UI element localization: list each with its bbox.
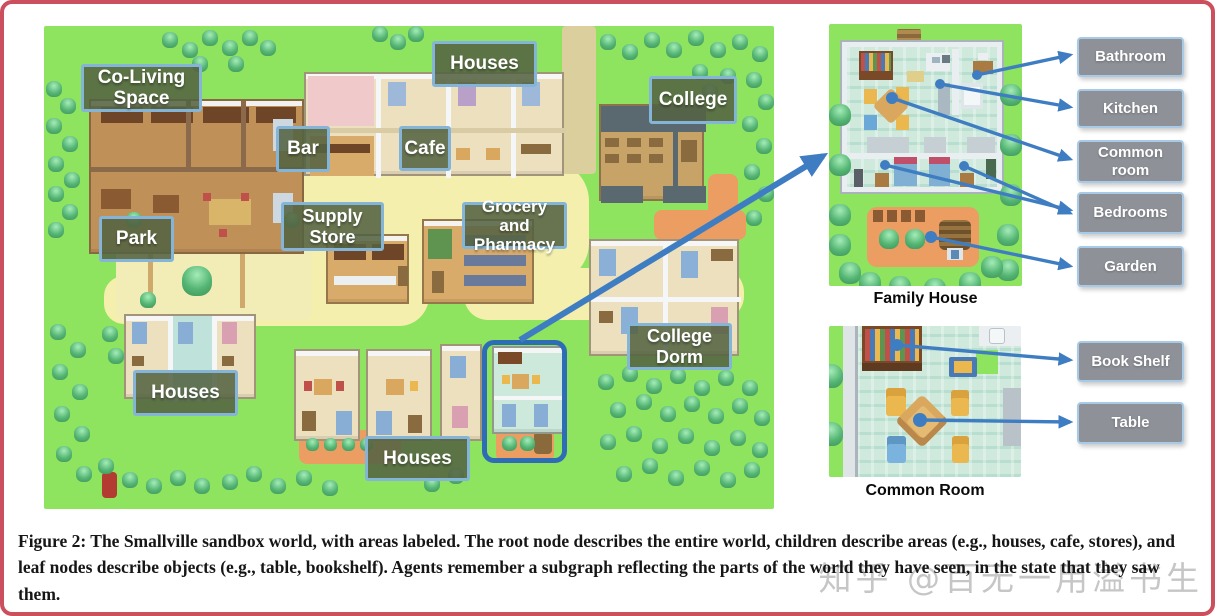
furniture <box>219 229 227 237</box>
tree-icon <box>694 380 710 396</box>
books <box>861 53 891 71</box>
person-icon <box>986 159 996 179</box>
tree-icon <box>670 368 686 384</box>
tree-icon <box>622 44 638 60</box>
building-house-b <box>366 349 432 441</box>
tree-icon <box>50 324 66 340</box>
tree-icon <box>62 136 78 152</box>
furniture <box>132 322 147 344</box>
tree-icon <box>752 442 768 458</box>
tree-icon <box>829 154 851 176</box>
tree-icon <box>1000 184 1022 206</box>
tree-icon <box>742 116 758 132</box>
tree-icon <box>322 480 338 496</box>
garden-tree-icon <box>879 229 899 249</box>
planter-icon <box>901 210 911 222</box>
furniture <box>209 199 251 225</box>
tree-icon <box>260 40 276 56</box>
tree-icon <box>642 458 658 474</box>
furniture <box>649 154 663 163</box>
tree-icon <box>666 42 682 58</box>
tree-icon <box>48 186 64 202</box>
pillow <box>929 157 950 164</box>
building-house-a <box>294 349 360 441</box>
side-chair-icon <box>960 173 974 187</box>
picture <box>954 361 972 373</box>
area-label-co-living-space: Co-Living Space <box>81 64 202 112</box>
tree-icon <box>46 81 62 97</box>
tree-icon <box>72 384 88 400</box>
tree-icon <box>108 348 124 364</box>
furniture <box>408 415 422 433</box>
furniture <box>452 406 468 428</box>
tree-icon <box>889 276 911 286</box>
tree-icon <box>62 204 78 220</box>
garden-tree-icon <box>324 438 337 451</box>
tree-icon <box>732 34 748 50</box>
figure-2-page: Co-Living Space Houses College Bar Cafe … <box>0 0 1215 616</box>
tree-icon <box>720 472 736 488</box>
furniture <box>91 167 306 172</box>
tree-icon <box>730 430 746 446</box>
planter-icon <box>915 210 925 222</box>
wall <box>847 153 997 159</box>
furniture <box>605 154 619 163</box>
tree-icon <box>202 30 218 46</box>
tree-icon <box>64 172 80 188</box>
tree-icon <box>372 26 388 42</box>
tree-icon <box>754 410 770 426</box>
furniture <box>601 186 643 203</box>
tree-icon <box>390 34 406 50</box>
tree-icon <box>718 370 734 386</box>
counter-icon <box>1003 388 1021 446</box>
garden-tree-icon <box>905 229 925 249</box>
wall-edge <box>855 326 858 477</box>
furniture <box>222 322 237 344</box>
furniture <box>376 411 392 435</box>
bathtub-inner <box>964 87 980 105</box>
furniture <box>178 322 193 344</box>
tree-icon <box>146 478 162 494</box>
tree-icon <box>688 30 704 46</box>
tree-icon <box>652 438 668 454</box>
label-bathroom: Bathroom <box>1077 37 1184 77</box>
furniture <box>336 381 344 391</box>
tree-icon <box>54 406 70 422</box>
figure-caption-text: The Smallville sandbox world, with areas… <box>18 531 1175 604</box>
furniture <box>376 74 381 178</box>
tree-icon <box>758 94 774 110</box>
furniture <box>222 356 234 366</box>
furniture <box>398 266 408 286</box>
furniture <box>511 74 516 178</box>
smallville-map: Co-Living Space Houses College Bar Cafe … <box>44 26 774 509</box>
chair-icon <box>887 436 906 463</box>
tree-icon <box>610 402 626 418</box>
furniture <box>681 140 697 162</box>
planter-icon <box>887 210 897 222</box>
tree-icon <box>626 426 642 442</box>
person-icon <box>854 169 863 187</box>
books <box>865 329 919 361</box>
park-big-tree-icon <box>182 266 212 296</box>
family-house-caption: Family House <box>829 290 1022 308</box>
family-house-floor <box>842 42 1002 192</box>
tree-icon <box>170 470 186 486</box>
common-room-caption: Common Room <box>829 482 1021 500</box>
furniture <box>308 76 374 126</box>
tree-icon <box>744 462 760 478</box>
washer-icon <box>989 328 1005 344</box>
tree-icon <box>76 466 92 482</box>
dirt-patch <box>654 210 746 240</box>
tree-icon <box>959 272 981 286</box>
furniture <box>450 356 466 378</box>
figure-caption: Figure 2: The Smallville sandbox world, … <box>18 528 1198 607</box>
tree-icon <box>408 26 424 42</box>
furniture <box>627 138 641 147</box>
tree-icon <box>660 406 676 422</box>
tree-icon <box>829 104 851 126</box>
label-table: Table <box>1077 402 1184 444</box>
tree-icon <box>746 72 762 88</box>
furniture <box>521 144 551 154</box>
area-label-college-dorm: College Dorm <box>627 323 732 370</box>
furniture <box>302 411 316 431</box>
tree-icon <box>98 458 114 474</box>
furniture <box>599 249 616 276</box>
label-garden: Garden <box>1077 246 1184 287</box>
label-book-shelf: Book Shelf <box>1077 341 1184 382</box>
furniture <box>314 379 332 395</box>
garden-patch <box>867 207 979 267</box>
furniture <box>304 381 312 391</box>
area-label-houses-left: Houses <box>133 370 238 416</box>
grass-patch <box>976 350 998 374</box>
tree-icon <box>52 364 68 380</box>
bookshelf-icon <box>862 326 922 371</box>
area-label-grocery-pharmacy: Grocery and Pharmacy <box>462 202 567 249</box>
label-kitchen: Kitchen <box>1077 89 1184 128</box>
furniture <box>464 255 526 266</box>
furniture <box>101 189 131 209</box>
tree-icon <box>704 440 720 456</box>
fridge-icon <box>938 83 950 115</box>
tree-icon <box>1000 134 1022 156</box>
grass-strip <box>829 326 843 477</box>
tree-icon <box>140 292 156 308</box>
planter-icon <box>873 210 883 222</box>
tree-icon <box>646 378 662 394</box>
tree-icon <box>70 342 86 358</box>
red-car-icon <box>102 472 117 498</box>
tree-icon <box>694 460 710 476</box>
area-label-houses-top: Houses <box>432 41 537 87</box>
furniture <box>464 275 526 286</box>
tree-icon <box>228 56 244 72</box>
tree-icon <box>644 32 660 48</box>
label-bedrooms: Bedrooms <box>1077 192 1184 234</box>
tree-icon <box>839 262 861 284</box>
tree-icon <box>732 398 748 414</box>
furniture <box>432 271 444 293</box>
tree-icon <box>708 408 724 424</box>
tree-icon <box>678 428 694 444</box>
tree-icon <box>48 156 64 172</box>
vanity-icon <box>973 61 993 74</box>
family-house-highlight-box <box>482 340 567 463</box>
tree-icon <box>222 40 238 56</box>
wall <box>952 49 959 115</box>
tree-icon <box>46 118 62 134</box>
tree-icon <box>758 186 774 202</box>
tree-icon <box>194 478 210 494</box>
tree-icon <box>598 374 614 390</box>
furniture <box>428 229 452 259</box>
furniture <box>410 381 418 391</box>
sink <box>932 57 940 63</box>
furniture <box>132 356 144 366</box>
tree-icon <box>162 32 178 48</box>
chair-icon <box>952 436 969 463</box>
tree-icon <box>616 466 632 482</box>
tree-icon <box>710 42 726 58</box>
furniture <box>605 138 619 147</box>
side-chair-icon <box>875 173 889 187</box>
tree-icon <box>924 278 946 286</box>
furniture <box>386 379 404 395</box>
tree-icon <box>752 46 768 62</box>
furniture <box>456 148 470 160</box>
gazebo-door <box>951 250 959 259</box>
area-label-houses-bottom: Houses <box>365 436 470 481</box>
tree-icon <box>48 222 64 238</box>
gazebo-roof-icon <box>939 220 971 250</box>
figure-number: Figure 2: <box>18 531 86 551</box>
furniture <box>649 138 663 147</box>
garden-tree-icon <box>342 438 355 451</box>
tree-icon <box>222 474 238 490</box>
common-room-image <box>829 326 1021 477</box>
chair-icon <box>864 115 877 130</box>
area-label-park: Park <box>99 216 174 262</box>
tree-icon <box>859 272 881 286</box>
area-label-cafe: Cafe <box>399 126 451 171</box>
wall <box>843 326 855 477</box>
furniture <box>681 251 698 278</box>
pillow <box>894 157 917 164</box>
tree-icon <box>600 34 616 50</box>
garden-tree-icon <box>306 438 319 451</box>
tree-icon <box>756 138 772 154</box>
furniture <box>599 311 613 323</box>
stove <box>942 55 950 63</box>
tree-icon <box>60 98 76 114</box>
furniture <box>627 154 641 163</box>
furniture <box>336 411 352 435</box>
furniture <box>153 195 179 213</box>
tree-icon <box>746 210 762 226</box>
furniture <box>663 186 706 203</box>
mirror <box>978 53 988 60</box>
tree-icon <box>829 234 851 256</box>
mat <box>907 71 924 82</box>
tree-icon <box>829 204 851 226</box>
tree-icon <box>242 30 258 46</box>
furniture <box>203 193 211 201</box>
area-label-supply-store: Supply Store <box>281 202 384 251</box>
furniture <box>388 82 406 106</box>
tree-icon <box>668 470 684 486</box>
tree-icon <box>636 394 652 410</box>
tree-icon <box>600 434 616 450</box>
tree-icon <box>74 426 90 442</box>
tree-icon <box>102 326 118 342</box>
tree-icon <box>1000 84 1022 106</box>
building-house-c <box>440 344 482 441</box>
area-label-bar: Bar <box>276 126 330 172</box>
tree-icon <box>270 478 286 494</box>
tree-icon <box>981 256 1003 278</box>
tree-icon <box>684 396 700 412</box>
tree-icon <box>296 470 312 486</box>
furniture <box>711 249 733 261</box>
tree-icon <box>56 446 72 462</box>
furniture <box>486 148 500 160</box>
tree-icon <box>122 472 138 488</box>
label-common-room: Common room <box>1077 140 1184 183</box>
tree-icon <box>744 164 760 180</box>
furniture <box>334 276 396 285</box>
tree-icon <box>246 466 262 482</box>
furniture <box>591 297 741 302</box>
road <box>562 26 596 174</box>
tree-icon <box>997 224 1019 246</box>
family-house-image <box>829 24 1022 286</box>
furniture <box>241 193 249 201</box>
chair-icon <box>951 390 969 416</box>
tree-icon <box>742 380 758 396</box>
area-label-college: College <box>649 76 737 124</box>
furniture <box>241 101 246 167</box>
